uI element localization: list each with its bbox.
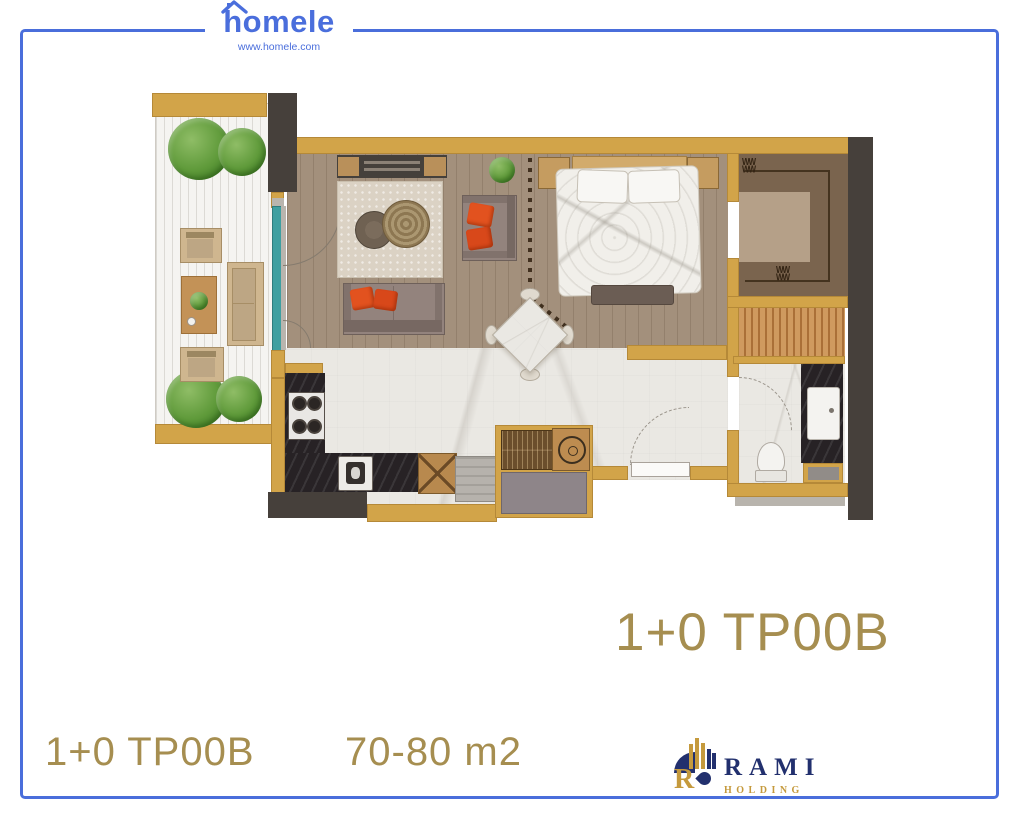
balcony-armchair [180, 228, 222, 263]
balcony-plant [218, 128, 266, 176]
toilet [755, 441, 785, 481]
brand-url: www.homele.com [205, 41, 353, 53]
wall [627, 345, 727, 360]
balcony-sofa [227, 262, 264, 346]
exterior-mask [593, 480, 728, 510]
wall [848, 137, 873, 520]
plan-code-large: 1+0 TP00B [615, 602, 890, 663]
wall [296, 137, 850, 154]
sofa-pillow [349, 286, 375, 311]
homele-roof-icon [221, 0, 249, 19]
bed-bench [591, 285, 674, 305]
balcony-armchair [180, 347, 224, 382]
wall [733, 356, 845, 364]
bathroom-sink [807, 387, 840, 440]
curtain-divider [528, 158, 532, 302]
footer-area: 70-80 m2 [345, 730, 522, 775]
tv-console [337, 155, 447, 178]
wall [271, 350, 285, 378]
bed-pillow [627, 169, 680, 204]
stove [288, 392, 325, 440]
dressing-wood-floor [739, 306, 845, 360]
hanger-rail-icon: WW WW [742, 159, 755, 174]
rami-logo-icon: R [672, 736, 718, 798]
wall [727, 483, 848, 497]
entry-door-leaf [631, 462, 690, 477]
coffee-table [382, 200, 430, 248]
wall [690, 466, 730, 480]
wall [727, 296, 848, 308]
balcony-table [181, 276, 217, 334]
floor-plan: WW WW WW WW [0, 0, 1024, 819]
wall [268, 492, 367, 518]
wall [727, 153, 739, 202]
sofa-pillow [373, 288, 399, 311]
brand-header: homele www.homele.com [205, 2, 353, 57]
vanity-shelf [803, 463, 843, 483]
washing-machine [552, 428, 590, 471]
footer-plan-code: 1+0 TP00B [45, 730, 255, 775]
shoe-rack [501, 430, 553, 470]
rami-subtitle: HOLDING [724, 785, 821, 796]
balcony-plant [216, 376, 262, 422]
exterior-mask [727, 506, 848, 520]
wall [155, 424, 272, 444]
wall-column [268, 93, 297, 192]
wall [727, 430, 739, 487]
window-frame [272, 198, 284, 206]
sofa-pillow [466, 226, 494, 251]
kitchen-sink [338, 456, 373, 491]
page: homele www.homele.com [0, 0, 1024, 819]
rami-name: RAMI [724, 754, 821, 782]
wall [152, 93, 267, 117]
living-plant [489, 157, 515, 183]
entry-cabinet-block [495, 425, 593, 518]
sofa-pillow [466, 202, 494, 228]
wall [271, 378, 285, 494]
threshold [735, 497, 845, 506]
dishwasher [455, 456, 498, 502]
bed-pillow [576, 169, 628, 204]
hanger-rail-icon: WW WW [776, 267, 789, 282]
wall [367, 504, 497, 522]
rami-logo: R RAMI HOLDING [672, 736, 862, 798]
rami-monogram: R [674, 764, 694, 796]
utility-box [501, 472, 587, 514]
wall [592, 466, 628, 480]
kitchen-cabinet [418, 453, 457, 494]
